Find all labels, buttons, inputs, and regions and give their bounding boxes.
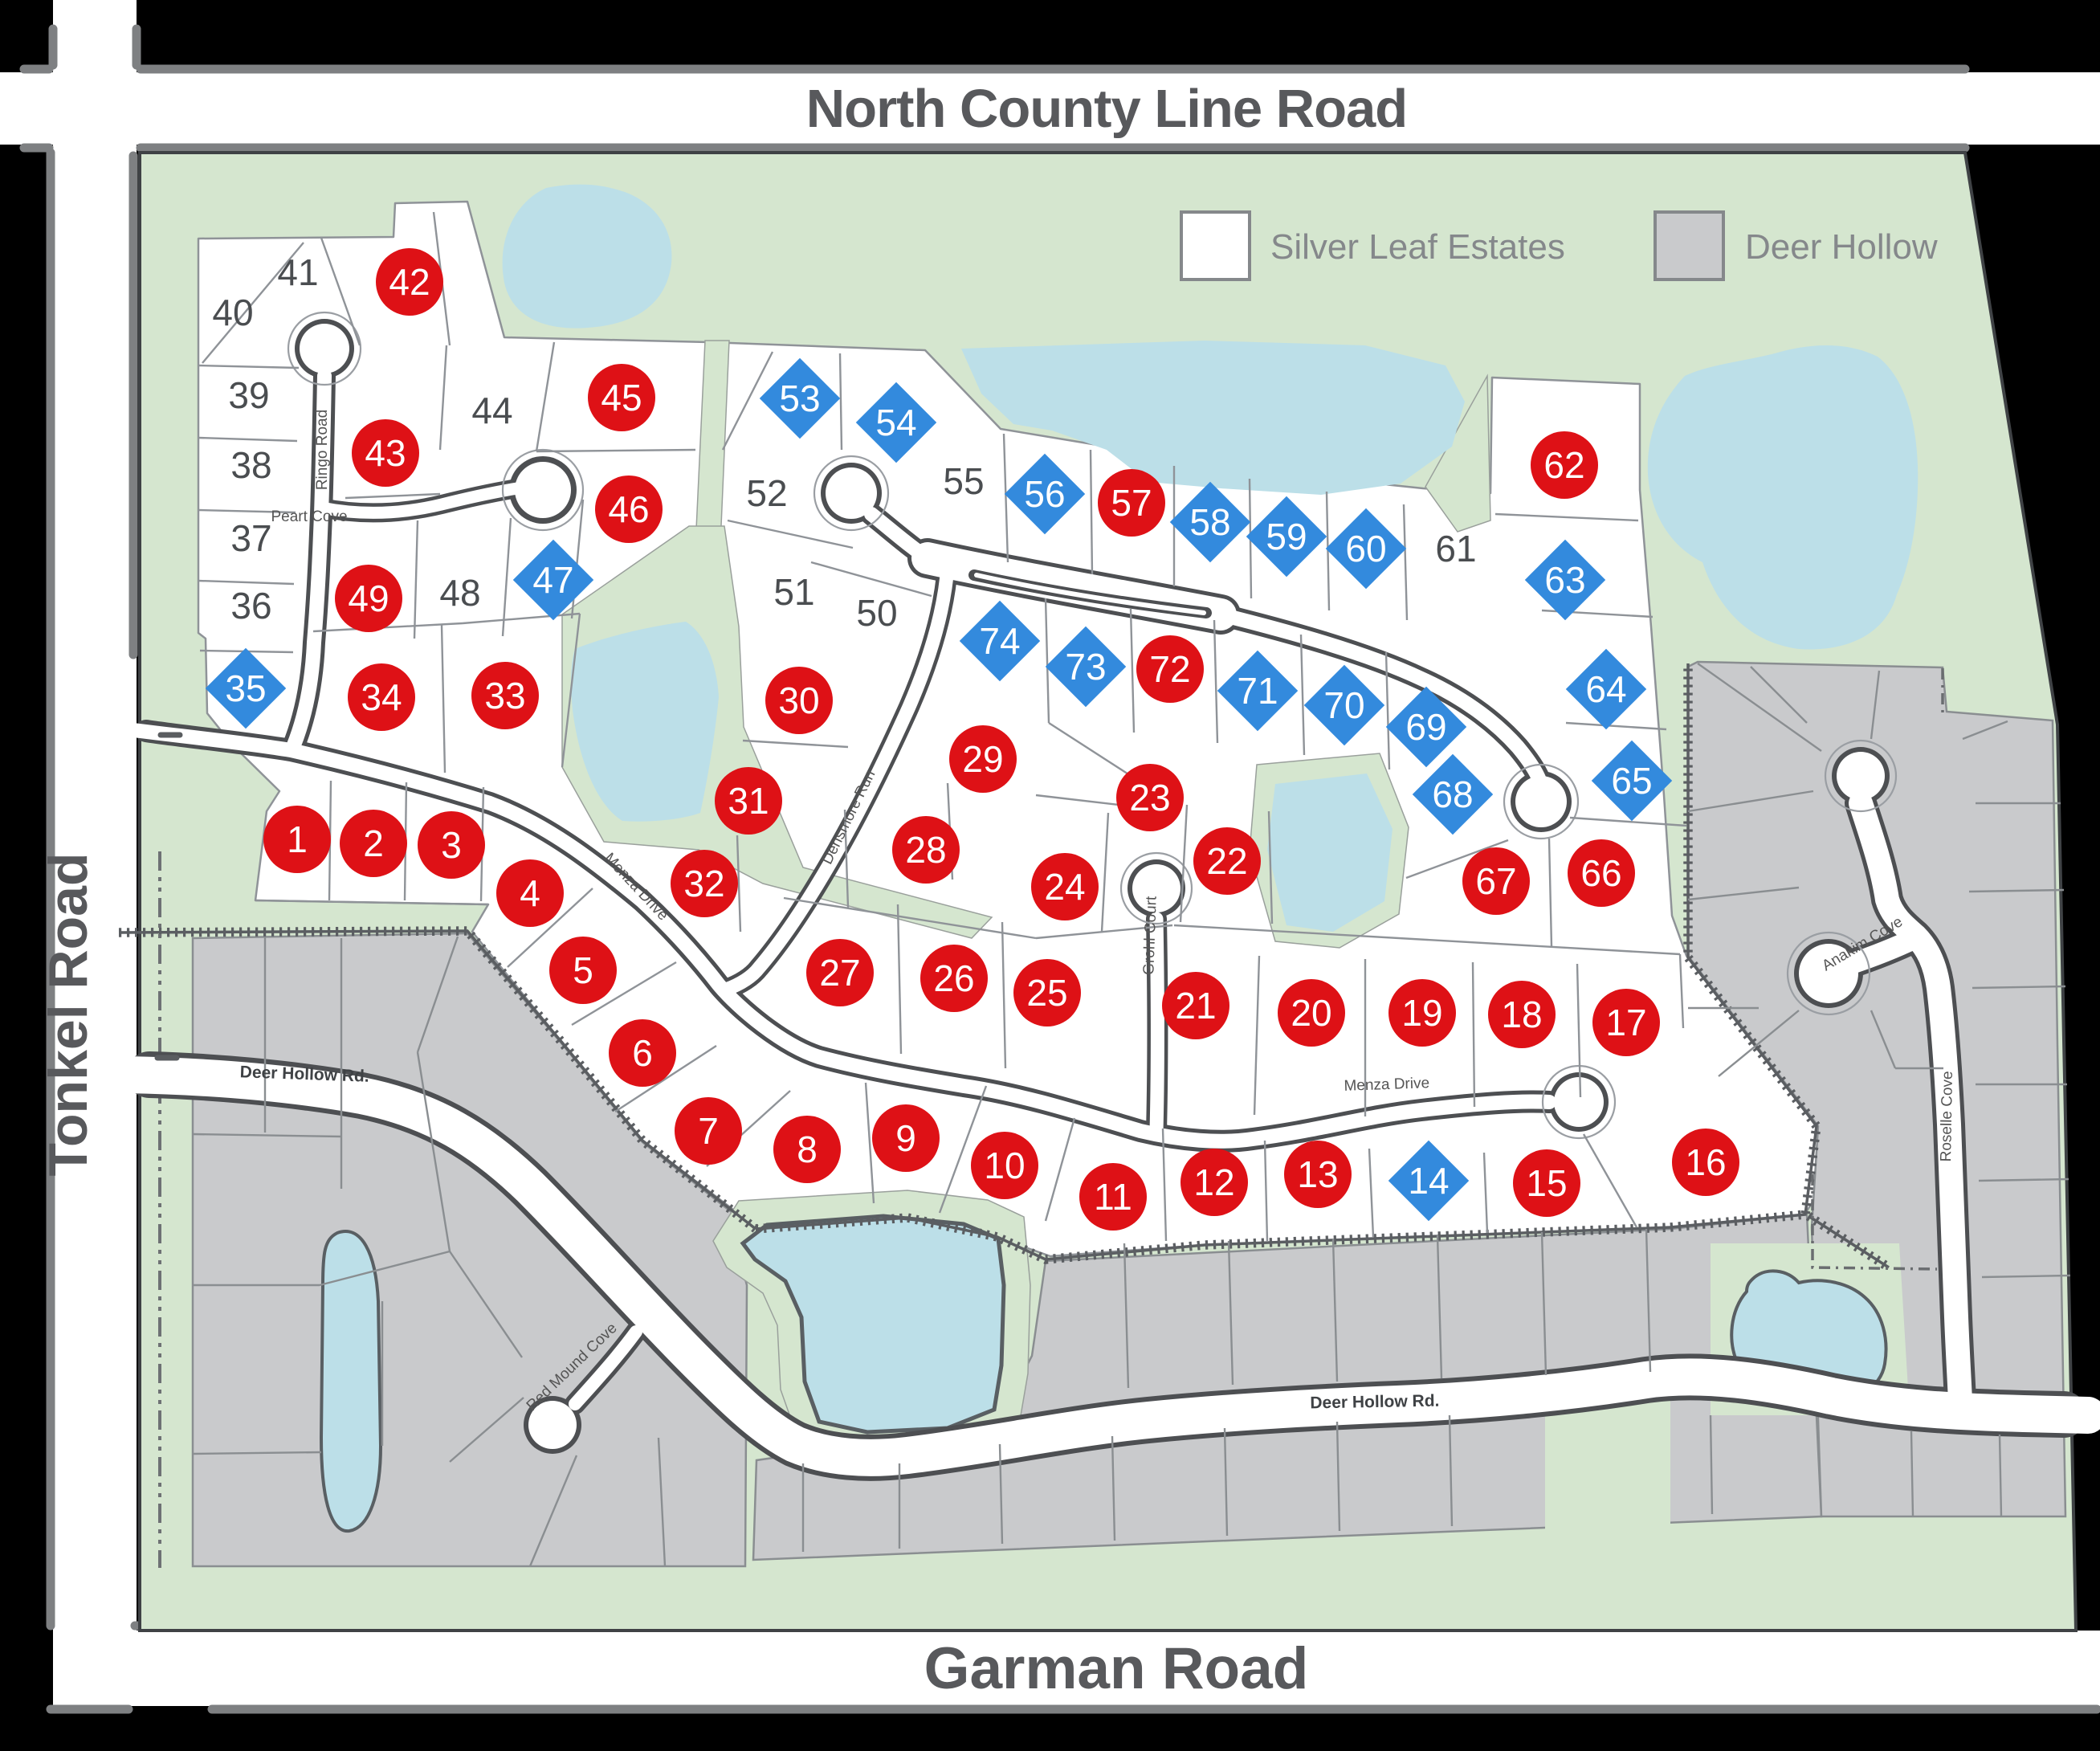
svg-text:8: 8 xyxy=(797,1129,818,1170)
svg-text:53: 53 xyxy=(779,378,820,419)
svg-text:34: 34 xyxy=(361,676,402,718)
svg-text:Ringo Road: Ringo Road xyxy=(314,410,331,490)
svg-text:Peart Cove: Peart Cove xyxy=(271,508,347,525)
svg-text:40: 40 xyxy=(212,292,253,333)
svg-text:Tonkel Road: Tonkel Road xyxy=(38,853,99,1177)
svg-text:23: 23 xyxy=(1129,777,1170,818)
svg-text:41: 41 xyxy=(277,251,318,293)
svg-text:35: 35 xyxy=(225,667,266,709)
svg-text:30: 30 xyxy=(778,680,819,721)
svg-text:31: 31 xyxy=(728,780,769,822)
svg-text:28: 28 xyxy=(905,829,946,871)
svg-text:50: 50 xyxy=(856,592,897,634)
svg-text:71: 71 xyxy=(1237,670,1278,712)
svg-text:60: 60 xyxy=(1345,528,1386,569)
svg-text:67: 67 xyxy=(1475,860,1516,902)
svg-text:33: 33 xyxy=(484,675,525,716)
svg-text:22: 22 xyxy=(1206,840,1247,882)
svg-text:10: 10 xyxy=(984,1145,1025,1186)
svg-text:11: 11 xyxy=(1094,1176,1132,1218)
svg-text:37: 37 xyxy=(230,517,271,559)
svg-text:Deer Hollow Rd.: Deer Hollow Rd. xyxy=(1310,1392,1439,1413)
svg-text:39: 39 xyxy=(228,374,269,416)
svg-text:Roselle Cove: Roselle Cove xyxy=(1938,1071,1956,1161)
svg-text:17: 17 xyxy=(1605,1002,1646,1043)
svg-text:16: 16 xyxy=(1685,1141,1726,1183)
svg-text:72: 72 xyxy=(1149,648,1190,690)
svg-text:64: 64 xyxy=(1585,668,1626,710)
svg-text:5: 5 xyxy=(573,949,593,991)
svg-text:18: 18 xyxy=(1501,994,1542,1035)
svg-text:7: 7 xyxy=(698,1110,719,1152)
svg-text:73: 73 xyxy=(1065,646,1106,688)
svg-text:59: 59 xyxy=(1266,516,1307,557)
svg-text:12: 12 xyxy=(1193,1161,1234,1203)
svg-text:68: 68 xyxy=(1432,773,1473,815)
svg-text:62: 62 xyxy=(1543,444,1584,486)
svg-text:21: 21 xyxy=(1175,985,1216,1027)
svg-text:1: 1 xyxy=(287,818,308,860)
svg-text:61: 61 xyxy=(1435,528,1476,569)
svg-text:6: 6 xyxy=(632,1032,653,1074)
svg-text:54: 54 xyxy=(875,402,916,443)
svg-text:70: 70 xyxy=(1323,684,1364,726)
svg-text:45: 45 xyxy=(601,377,642,418)
svg-text:North County Line Road: North County Line Road xyxy=(806,79,1407,139)
svg-text:24: 24 xyxy=(1044,866,1085,908)
svg-text:14: 14 xyxy=(1408,1160,1449,1202)
svg-text:57: 57 xyxy=(1111,482,1152,524)
svg-text:47: 47 xyxy=(532,559,573,601)
svg-text:49: 49 xyxy=(348,578,389,619)
svg-text:13: 13 xyxy=(1297,1153,1338,1195)
svg-text:Silver Leaf Estates: Silver Leaf Estates xyxy=(1270,227,1565,267)
svg-text:Grohl Court: Grohl Court xyxy=(1140,896,1160,976)
svg-text:2: 2 xyxy=(363,822,384,864)
svg-text:3: 3 xyxy=(441,824,462,866)
svg-text:Menza Drive: Menza Drive xyxy=(1344,1075,1429,1095)
svg-text:36: 36 xyxy=(230,585,271,627)
svg-text:27: 27 xyxy=(819,952,860,994)
svg-text:32: 32 xyxy=(683,863,724,904)
svg-text:Garman Road: Garman Road xyxy=(924,1636,1309,1701)
svg-text:19: 19 xyxy=(1401,992,1442,1034)
svg-text:69: 69 xyxy=(1405,706,1446,748)
svg-text:65: 65 xyxy=(1611,760,1652,802)
svg-text:58: 58 xyxy=(1189,501,1230,543)
svg-text:48: 48 xyxy=(439,572,480,614)
svg-text:20: 20 xyxy=(1291,992,1331,1034)
svg-text:43: 43 xyxy=(365,432,406,474)
svg-text:51: 51 xyxy=(773,571,814,613)
svg-text:25: 25 xyxy=(1026,972,1067,1014)
svg-text:56: 56 xyxy=(1024,473,1065,515)
svg-text:52: 52 xyxy=(746,472,787,514)
svg-text:74: 74 xyxy=(979,620,1020,662)
svg-text:66: 66 xyxy=(1580,852,1621,894)
svg-text:Deer Hollow: Deer Hollow xyxy=(1745,227,1938,267)
svg-text:55: 55 xyxy=(943,460,984,502)
svg-text:9: 9 xyxy=(895,1117,916,1159)
svg-text:42: 42 xyxy=(389,261,430,303)
svg-text:38: 38 xyxy=(230,444,271,486)
svg-text:29: 29 xyxy=(962,738,1003,780)
svg-text:4: 4 xyxy=(520,872,540,914)
svg-text:15: 15 xyxy=(1526,1162,1567,1204)
svg-text:44: 44 xyxy=(471,390,512,431)
svg-text:46: 46 xyxy=(608,488,649,530)
svg-text:26: 26 xyxy=(933,957,974,999)
svg-text:63: 63 xyxy=(1544,559,1585,601)
